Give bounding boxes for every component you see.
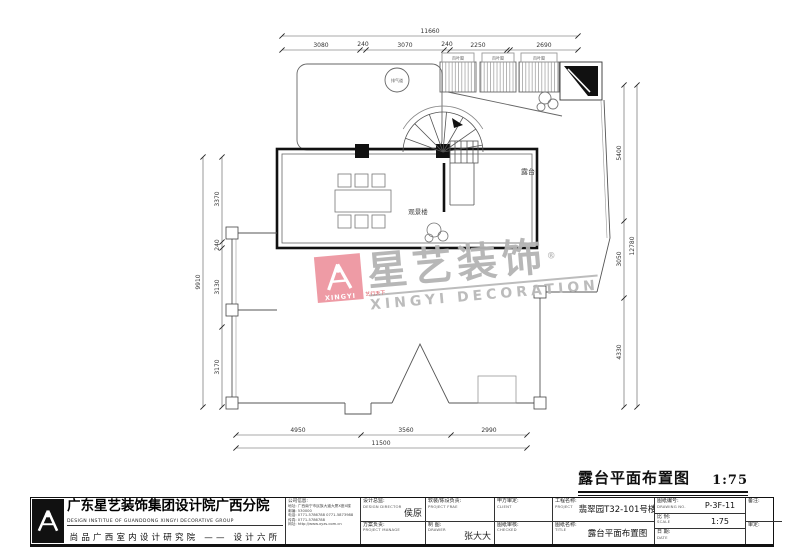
lower-terrace-outline (226, 227, 597, 414)
drawing-title: 露台平面布置图 1:75 (578, 467, 748, 493)
scale-cell: 比 例: SCALE 1:75 (655, 513, 745, 529)
dim-bottom-total: 11500 (371, 440, 390, 447)
plant-icon (425, 223, 448, 242)
dim-left-seg: 3170 (214, 359, 221, 374)
checked-cell: 图纸审核: CHECKED (495, 521, 552, 545)
compass-icon (35, 508, 61, 534)
deco-cell: 软装/陈设负责: PROJECT FRAE (426, 498, 494, 521)
drawing-no-value: P-3F-11 (697, 498, 743, 513)
terrace-right-wall (597, 100, 610, 292)
dim-left-seg: 240 (214, 239, 221, 251)
louver-window (440, 62, 476, 92)
drawer-name: 张大大 (464, 529, 491, 542)
spiral-staircase (403, 106, 483, 212)
viewing-room (277, 144, 537, 248)
column-marker (355, 144, 369, 158)
floor-plan-canvas: 11660 3080 240 3070 240 2250 2690 4950 3… (0, 0, 800, 465)
terrace-right-wall-inner (601, 101, 607, 238)
dim-bottom-seg: 3560 (398, 427, 413, 434)
dim-right-seg: 3050 (616, 251, 623, 266)
cell-label-en: CHECKED (497, 528, 550, 533)
dim-top-seg: 240 (357, 41, 369, 48)
cad-sheet: 11660 3080 240 3070 240 2250 2690 4950 3… (0, 0, 800, 547)
louver-label: 百叶窗 (533, 55, 545, 61)
project-manager-cell: 方案负责: PROJECT MANAGE (361, 521, 425, 545)
louver-label: 百叶窗 (452, 55, 464, 61)
dim-top-seg: 240 (441, 41, 453, 48)
plant-icon (537, 92, 558, 111)
info-line: 网址: http://www.xyzs.com.cn (288, 522, 358, 527)
dim-bottom-seg: 4950 (290, 427, 305, 434)
date-cell: 日 期: DATE (655, 528, 745, 544)
louver-window (519, 62, 559, 92)
company-name-cn: 广东星艺装饰集团设计院广西分院 (67, 499, 283, 513)
dim-top-seg: 2690 (536, 42, 551, 49)
dim-right-seg: 5400 (616, 145, 623, 160)
sheet-title-cell: 图纸名称: TITLE 露台平面布置图 (553, 521, 654, 545)
glass-roof-outline (297, 64, 442, 150)
company-name-en: DESIGN INSTITUE OF GUANDDONG XINGYI DECO… (67, 519, 283, 526)
dim-left-total: 9910 (195, 274, 202, 289)
dim-left-seg: 3130 (214, 279, 221, 294)
drawing-no-cell: 图纸编号: DRAWING NO. P-3F-11 (655, 498, 745, 513)
dim-left-seg: 3370 (214, 191, 221, 206)
title-block: 广东星艺装饰集团设计院广西分院 DESIGN INSTITUE OF GUAND… (30, 497, 774, 547)
dim-bottom-seg: 2990 (481, 427, 496, 434)
director-column: 设计总监: DESIGN DIRECTOR 侯原 方案负责: PROJECT M… (361, 498, 426, 544)
louver-window (480, 62, 516, 92)
design-director-name: 侯原 (404, 506, 422, 519)
design-director-cell: 设计总监: DESIGN DIRECTOR 侯原 (361, 498, 425, 521)
remark-cell: 备注: (746, 498, 782, 521)
cell-label: 审定: (748, 523, 780, 529)
project-title-column: 工程名称: PROJECT 翡翠园T32-101号楼 图纸名称: TITLE 露… (553, 498, 655, 544)
company-section: 广东星艺装饰集团设计院广西分院 DESIGN INSTITUE OF GUAND… (31, 498, 286, 544)
cell-label: 备注: (748, 499, 780, 505)
drawing-scale: 1:75 (712, 473, 748, 488)
dim-top-total: 11660 (420, 28, 439, 35)
terrace-label: 露台 (521, 167, 535, 176)
cell-label-en: CLIENT (497, 505, 550, 510)
dim-top-seg: 3070 (397, 42, 412, 49)
date-value (697, 529, 743, 544)
drawer-cell: 制 图: DRAWER 张大大 (426, 521, 494, 545)
client-check-column: 甲方审定: CLIENT 图纸审核: CHECKED (495, 498, 553, 544)
viewing-room-wall (277, 149, 537, 248)
drawing-title-text: 露台平面布置图 (578, 467, 690, 488)
title-block-table: 公司信息: 地址: 广西南宁市民族大道大厦X座X楼 邮编: 530000 电话:… (286, 498, 782, 544)
viewing-room-wall-inner (282, 154, 532, 243)
dining-table-set (335, 174, 391, 228)
dim-right-total: 12780 (629, 236, 636, 255)
louver-label: 百叶窗 (492, 55, 504, 61)
dim-top-seg: 2250 (470, 42, 485, 49)
client-cell: 甲方审定: CLIENT (495, 498, 552, 521)
project-name-cell: 工程名称: PROJECT 翡翠园T32-101号楼 (553, 498, 654, 521)
scale-value: 1:75 (697, 514, 743, 529)
terrace-steps (345, 403, 371, 414)
dim-top-seg: 3080 (313, 42, 328, 49)
approve-cell: 审定: (746, 521, 782, 545)
sheet-title-value: 露台平面布置图 (583, 522, 652, 545)
upper-roof-structures (297, 53, 610, 292)
company-logo (32, 499, 64, 543)
cell-label-en: PROJECT MANAGE (363, 528, 423, 533)
project-name-value: 翡翠园T32-101号楼 (583, 498, 652, 521)
cell-label-en: PROJECT FRAE (428, 505, 492, 510)
terrace-bay (392, 344, 449, 403)
deco-drawer-column: 软装/陈设负责: PROJECT FRAE 制 图: DRAWER 张大大 (426, 498, 495, 544)
remark-column: 备注: 审定: (746, 498, 782, 544)
number-scale-date-column: 图纸编号: DRAWING NO. P-3F-11 比 例: SCALE 1:7… (655, 498, 746, 544)
vent-label: 排气道 (391, 77, 403, 83)
dim-right-seg: 4330 (616, 344, 623, 359)
company-info-cell: 公司信息: 地址: 广西南宁市民族大道大厦X座X楼 邮编: 530000 电话:… (286, 498, 361, 544)
column-markers (226, 227, 546, 409)
company-subtitle: 尚品广西室内设计研究院 —— 设计六所 (67, 531, 283, 543)
viewing-room-label: 观景楼 (408, 207, 428, 216)
